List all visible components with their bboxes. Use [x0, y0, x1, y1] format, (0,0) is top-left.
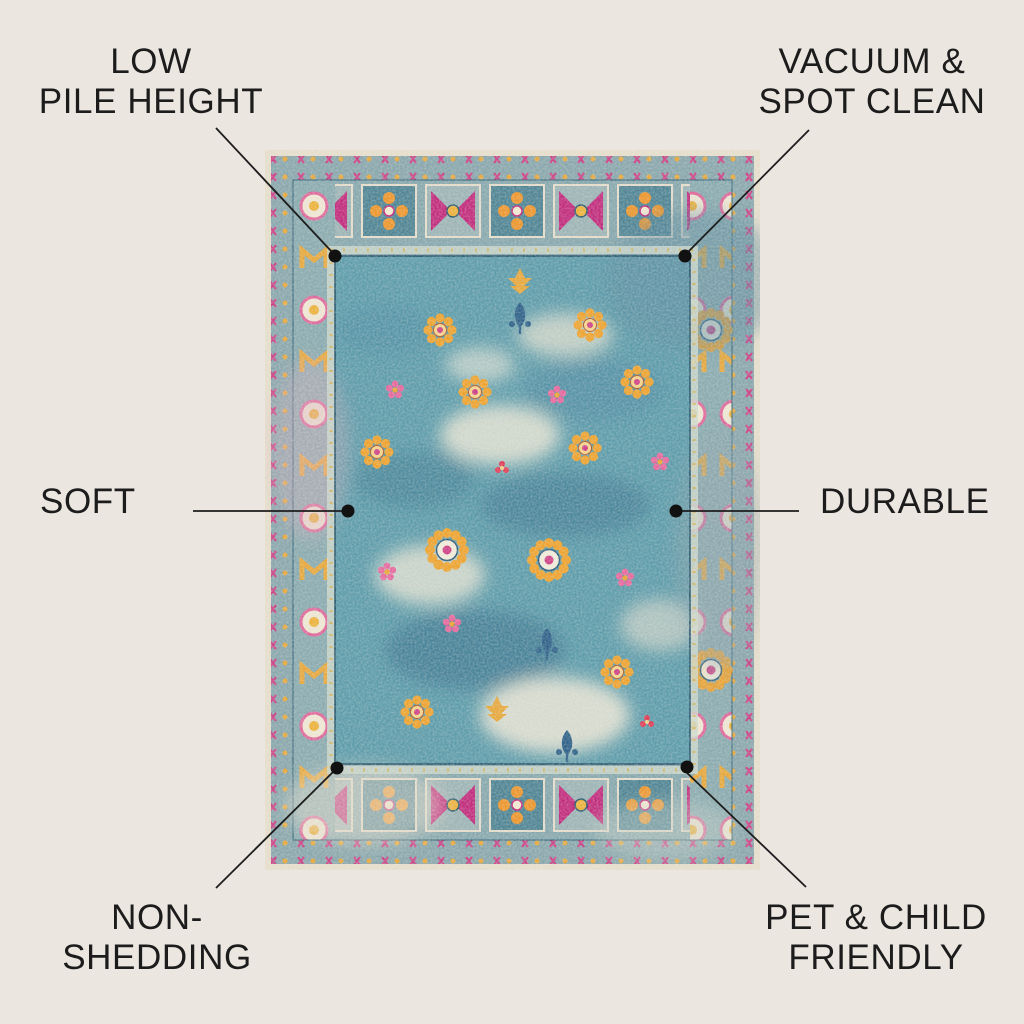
feature-label-low-pile-height: LOW PILE HEIGHT	[39, 42, 263, 121]
feature-label-durable: DURABLE	[820, 482, 990, 522]
feature-label-non-shedding: NON- SHEDDING	[62, 898, 252, 977]
product-infographic: LOW PILE HEIGHT VACUUM & SPOT CLEAN SOFT…	[0, 0, 1024, 1024]
feature-label-pet-child-friendly: PET & CHILD FRIENDLY	[765, 898, 987, 977]
feature-label-vacuum-spot-clean: VACUUM & SPOT CLEAN	[758, 42, 985, 121]
feature-label-soft: SOFT	[40, 482, 136, 522]
rug-photo	[265, 150, 760, 870]
